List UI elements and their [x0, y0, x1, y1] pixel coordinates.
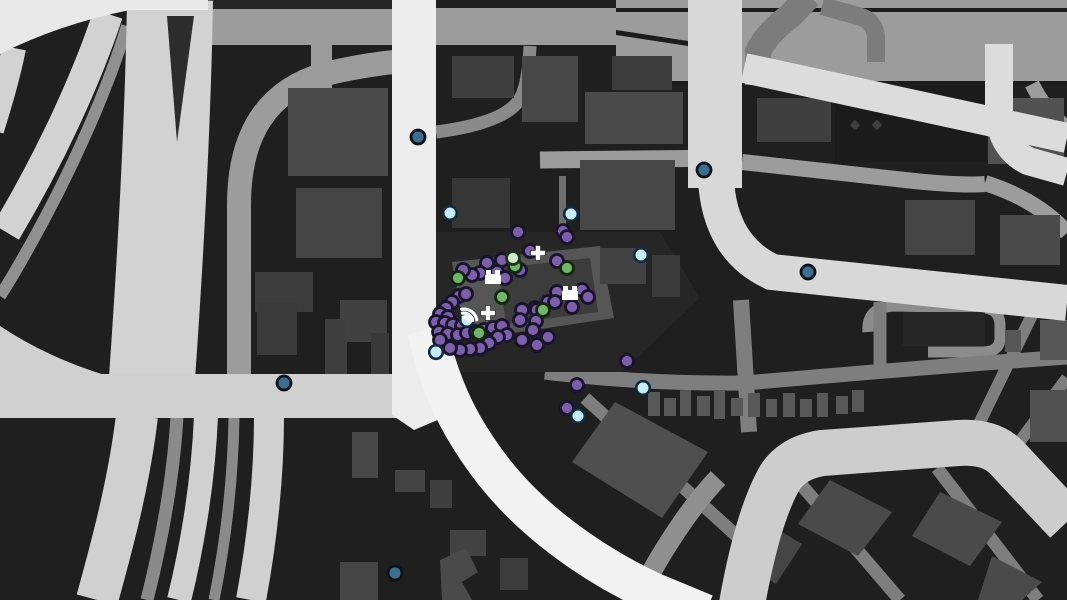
purple-player-blip[interactable] — [582, 291, 595, 304]
city-map[interactable] — [0, 0, 1067, 600]
purple-player-blip[interactable] — [512, 226, 525, 239]
purple-player-blip[interactable] — [571, 379, 584, 392]
dark_blue-player-blip[interactable] — [801, 265, 815, 279]
purple-player-blip[interactable] — [527, 324, 540, 337]
light_blue-player-blip[interactable] — [429, 345, 443, 359]
purple-player-blip[interactable] — [566, 301, 579, 314]
light_blue-player-blip[interactable] — [571, 409, 585, 423]
purple-player-blip[interactable] — [561, 231, 574, 244]
green-player-blip[interactable] — [537, 304, 550, 317]
dark_blue-player-blip[interactable] — [411, 130, 425, 144]
dark_blue-player-blip[interactable] — [697, 163, 711, 177]
green-player-blip[interactable] — [473, 327, 486, 340]
green-player-blip[interactable] — [496, 291, 509, 304]
green-player-blip[interactable] — [452, 272, 465, 285]
light_blue-player-blip[interactable] — [634, 248, 648, 262]
purple-player-blip[interactable] — [621, 355, 634, 368]
light_blue-player-blip[interactable] — [564, 207, 578, 221]
purple-player-blip[interactable] — [516, 334, 529, 347]
green-player-blip[interactable] — [561, 262, 574, 275]
dark_blue-player-blip[interactable] — [388, 566, 402, 580]
purple-player-blip[interactable] — [460, 288, 473, 301]
dark_blue-player-blip[interactable] — [277, 376, 291, 390]
light_blue-player-blip[interactable] — [636, 381, 650, 395]
purple-player-blip[interactable] — [542, 331, 555, 344]
light_blue-player-blip[interactable] — [443, 206, 457, 220]
purple-player-blip[interactable] — [514, 314, 527, 327]
game-map-screen — [0, 0, 1067, 600]
purple-player-blip[interactable] — [549, 296, 562, 309]
pale_green-player-blip[interactable] — [507, 252, 520, 265]
